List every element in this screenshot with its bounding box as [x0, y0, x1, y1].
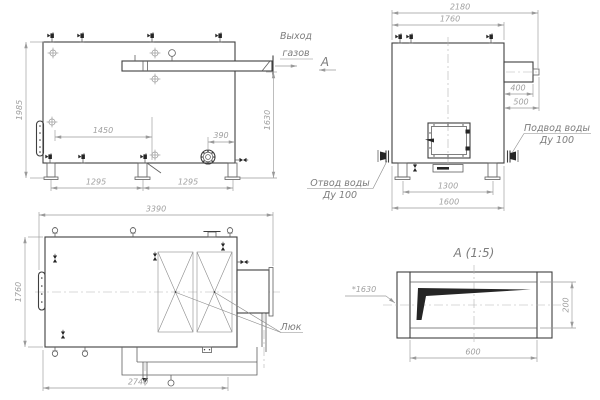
drain-valve-icon — [140, 153, 147, 163]
svg-text:200: 200 — [562, 297, 571, 312]
plan-valve-icon — [237, 260, 249, 264]
gas-duct — [122, 61, 272, 71]
gas-outlet-callout: Выход газов — [275, 31, 313, 66]
svg-text:2740: 2740 — [128, 378, 148, 387]
gas-outlet-label-2: газов — [282, 48, 310, 59]
valve-icon — [395, 33, 402, 43]
svg-text:1630: 1630 — [263, 110, 272, 130]
drawing-sheet: Выход газов А 1985 1630 1450 — [0, 0, 600, 400]
svg-text:1300: 1300 — [438, 182, 458, 191]
centermark-icon — [150, 48, 161, 59]
gas-duct-plan — [237, 270, 269, 313]
side-flange-icon — [39, 272, 46, 310]
svg-text:1600: 1600 — [439, 198, 459, 207]
svg-text:1450: 1450 — [93, 126, 113, 135]
valve-icon — [47, 32, 54, 42]
outlet-label-1: Отвод воды — [310, 178, 370, 189]
detail-title: А (1:5) — [453, 246, 495, 260]
svg-text:600: 600 — [465, 348, 480, 357]
water-outlet-connection — [378, 150, 389, 162]
drain-valve-icon — [45, 153, 52, 163]
svg-text:390: 390 — [213, 131, 228, 140]
section-arrow: А — [319, 55, 336, 70]
plan-valve-icon — [153, 252, 157, 261]
dim-1630: 1630 — [240, 72, 277, 178]
pipe-fitting-icon — [130, 228, 135, 237]
drain-valve-icon — [413, 163, 417, 172]
wall-valve-icon — [235, 158, 248, 162]
plan-valve-icon — [61, 330, 65, 339]
hatch-door — [425, 123, 470, 158]
gas-outlet-label-1: Выход — [280, 31, 312, 42]
pipe-fitting-icon — [52, 347, 57, 356]
centermark-icon — [150, 74, 161, 85]
valve-icon — [215, 32, 222, 42]
svg-text:2180: 2180 — [450, 3, 470, 12]
gauge-icon — [169, 50, 176, 57]
inlet-label-2: Ду 100 — [539, 135, 574, 146]
dim-ref-1630: *1630 — [345, 285, 395, 303]
top-view: Люк 3390 1760 2740 — [14, 205, 303, 392]
pipe-end-icon — [168, 380, 174, 386]
hatch-label: Люк — [280, 322, 302, 333]
dim-1985: 1985 — [15, 42, 44, 178]
side-view: Подвод воды Ду 100 Отвод воды Ду 100 218… — [307, 3, 591, 212]
hatch-box-left — [158, 252, 193, 332]
svg-text:400: 400 — [510, 84, 525, 93]
svg-text:500: 500 — [513, 98, 528, 107]
outlet-callout: Отвод воды Ду 100 — [307, 161, 387, 201]
dim-400: 400 — [504, 84, 533, 98]
svg-text:1295: 1295 — [86, 178, 106, 187]
dim-1450: 1450 — [55, 117, 152, 160]
detail-view: А (1:5) *1630 200 600 — [345, 246, 576, 362]
top-flange-icon — [204, 232, 220, 238]
valve-icon — [406, 33, 413, 43]
outlet-label-2: Ду 100 — [322, 190, 357, 201]
boiler-drawing: Выход газов А 1985 1630 1450 — [0, 0, 600, 400]
dim-600: 600 — [410, 340, 537, 362]
centermark-icon — [150, 150, 161, 161]
section-label: А — [320, 55, 329, 69]
dim-2180: 2180 — [392, 3, 538, 69]
centermark-icon — [47, 117, 58, 128]
svg-text:*1630: *1630 — [352, 285, 376, 294]
hatch-handle-icon — [425, 139, 434, 143]
valve-icon — [147, 32, 154, 42]
svg-text:1985: 1985 — [15, 100, 24, 120]
valve-icon — [486, 33, 493, 43]
pipe-fitting-icon — [227, 228, 232, 237]
plan-valve-icon — [221, 242, 225, 251]
plan-valve-icon — [53, 254, 57, 263]
svg-text:1295: 1295 — [178, 178, 198, 187]
svg-text:1760: 1760 — [440, 15, 460, 24]
drain-valve-icon — [78, 153, 85, 163]
valve-icon — [77, 32, 84, 42]
round-flange-icon — [201, 150, 215, 164]
inlet-callout: Подвод воды Ду 100 — [512, 123, 591, 153]
dim-390: 390 — [208, 131, 235, 149]
centermark-icon — [48, 48, 59, 59]
front-view: Выход газов А 1985 1630 1450 — [15, 31, 336, 191]
inlet-label-1: Подвод воды — [524, 123, 591, 134]
svg-text:1760: 1760 — [14, 282, 23, 302]
dim-1300: 1300 — [403, 181, 493, 195]
dim-1295-right: 1295 — [143, 178, 233, 189]
svg-text:3390: 3390 — [146, 205, 166, 214]
pipe-fitting-icon — [52, 228, 57, 237]
pipe-fitting-icon — [82, 347, 87, 356]
dim-2740: 2740 — [43, 350, 228, 391]
